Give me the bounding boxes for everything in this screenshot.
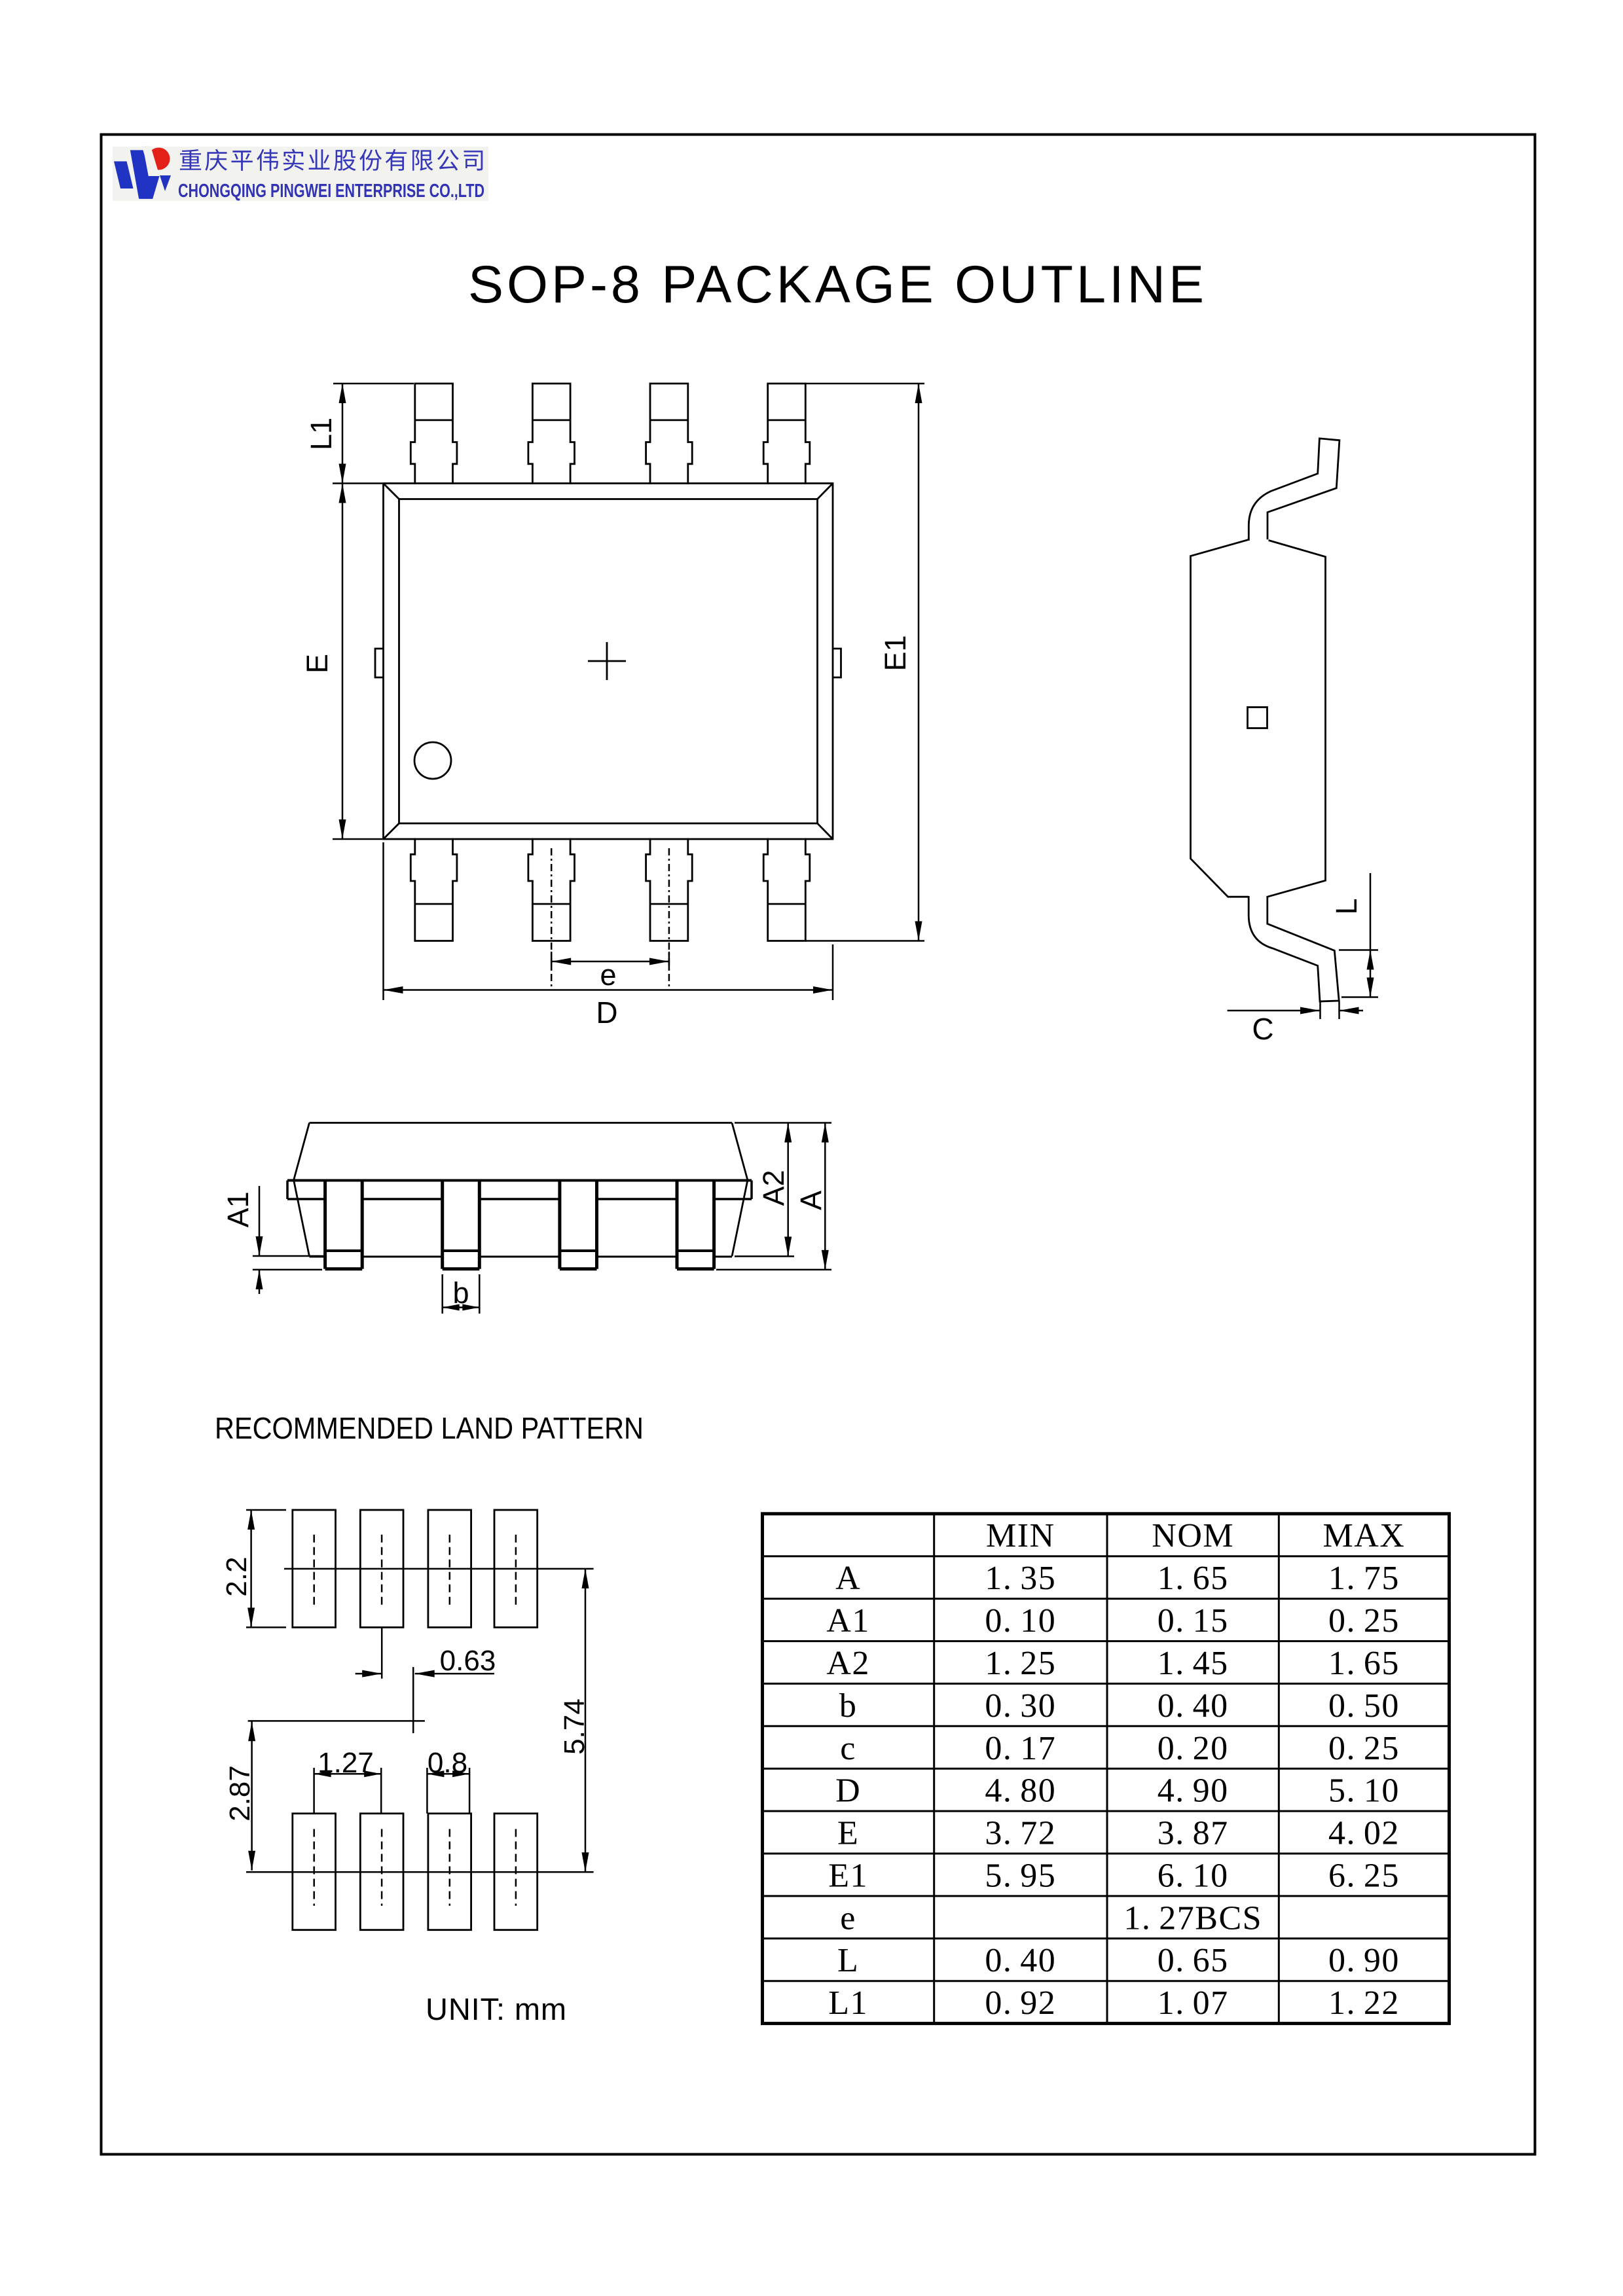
svg-text:1. 35: 1. 35 xyxy=(985,1560,1056,1597)
svg-text:0. 40: 0. 40 xyxy=(985,1942,1056,1979)
svg-text:E1: E1 xyxy=(879,635,912,671)
svg-text:C: C xyxy=(1252,1012,1273,1046)
svg-text:MAX: MAX xyxy=(1322,1517,1405,1554)
svg-text:3. 72: 3. 72 xyxy=(985,1815,1056,1852)
svg-text:MIN: MIN xyxy=(986,1517,1055,1554)
svg-text:RECOMMENDED LAND PATTERN: RECOMMENDED LAND PATTERN xyxy=(215,1411,644,1445)
svg-text:L: L xyxy=(1330,898,1363,914)
svg-text:5. 95: 5. 95 xyxy=(985,1857,1056,1894)
svg-text:2.2: 2.2 xyxy=(221,1556,253,1596)
svg-text:3. 87: 3. 87 xyxy=(1158,1815,1229,1852)
svg-text:E: E xyxy=(301,654,334,673)
svg-text:5.74: 5.74 xyxy=(558,1698,591,1755)
svg-text:A1: A1 xyxy=(221,1191,255,1227)
svg-text:0.63: 0.63 xyxy=(440,1645,496,1677)
svg-text:A: A xyxy=(794,1191,828,1210)
svg-text:0. 25: 0. 25 xyxy=(1328,1730,1400,1767)
svg-text:1. 07: 1. 07 xyxy=(1158,1984,1229,2022)
svg-text:4. 02: 4. 02 xyxy=(1328,1815,1400,1852)
svg-text:NOM: NOM xyxy=(1152,1517,1234,1554)
svg-text:6. 10: 6. 10 xyxy=(1158,1857,1229,1894)
svg-text:4. 80: 4. 80 xyxy=(985,1772,1056,1810)
svg-text:0. 92: 0. 92 xyxy=(985,1984,1056,2022)
svg-text:A: A xyxy=(835,1560,861,1597)
svg-text:E1: E1 xyxy=(828,1857,868,1894)
svg-text:0. 20: 0. 20 xyxy=(1158,1730,1229,1767)
svg-text:L: L xyxy=(837,1942,859,1979)
svg-text:1.27: 1.27 xyxy=(318,1747,374,1779)
svg-text:A2: A2 xyxy=(757,1170,790,1206)
svg-text:1. 22: 1. 22 xyxy=(1328,1984,1400,2022)
svg-text:c: c xyxy=(840,1730,856,1767)
svg-text:A1: A1 xyxy=(826,1602,870,1640)
svg-text:D: D xyxy=(835,1772,861,1810)
svg-text:1. 45: 1. 45 xyxy=(1158,1645,1229,1682)
svg-text:1. 65: 1. 65 xyxy=(1328,1645,1400,1682)
svg-text:L1: L1 xyxy=(828,1984,868,2022)
svg-text:UNIT: mm: UNIT: mm xyxy=(426,1992,566,2026)
svg-text:0. 10: 0. 10 xyxy=(985,1602,1056,1640)
svg-text:e: e xyxy=(840,1899,856,1937)
svg-text:CHONGQING PINGWEI ENTERPRISE C: CHONGQING PINGWEI ENTERPRISE CO.,LTD xyxy=(178,181,484,202)
svg-text:0. 90: 0. 90 xyxy=(1328,1942,1400,1979)
svg-text:SOP-8 PACKAGE OUTLINE: SOP-8 PACKAGE OUTLINE xyxy=(468,255,1204,314)
svg-text:1. 27BCS: 1. 27BCS xyxy=(1123,1899,1262,1937)
svg-text:e: e xyxy=(600,958,616,992)
svg-text:L1: L1 xyxy=(304,418,338,450)
svg-text:0.8: 0.8 xyxy=(428,1747,467,1779)
svg-text:b: b xyxy=(452,1276,469,1310)
svg-text:E: E xyxy=(837,1815,859,1852)
svg-text:0. 25: 0. 25 xyxy=(1328,1602,1400,1640)
svg-text:5. 10: 5. 10 xyxy=(1328,1772,1400,1810)
svg-text:1. 65: 1. 65 xyxy=(1158,1560,1229,1597)
svg-text:4. 90: 4. 90 xyxy=(1158,1772,1229,1810)
svg-text:D: D xyxy=(596,996,617,1030)
svg-text:0. 17: 0. 17 xyxy=(985,1730,1056,1767)
svg-text:0. 50: 0. 50 xyxy=(1328,1687,1400,1725)
svg-text:b: b xyxy=(839,1687,858,1725)
svg-text:1. 75: 1. 75 xyxy=(1328,1560,1400,1597)
svg-text:0. 65: 0. 65 xyxy=(1158,1942,1229,1979)
svg-text:6. 25: 6. 25 xyxy=(1328,1857,1400,1894)
svg-text:2.87: 2.87 xyxy=(224,1765,256,1821)
svg-text:0. 15: 0. 15 xyxy=(1158,1602,1229,1640)
svg-text:A2: A2 xyxy=(826,1645,870,1682)
svg-text:0. 40: 0. 40 xyxy=(1158,1687,1229,1725)
svg-text:1. 25: 1. 25 xyxy=(985,1645,1056,1682)
svg-text:0. 30: 0. 30 xyxy=(985,1687,1056,1725)
